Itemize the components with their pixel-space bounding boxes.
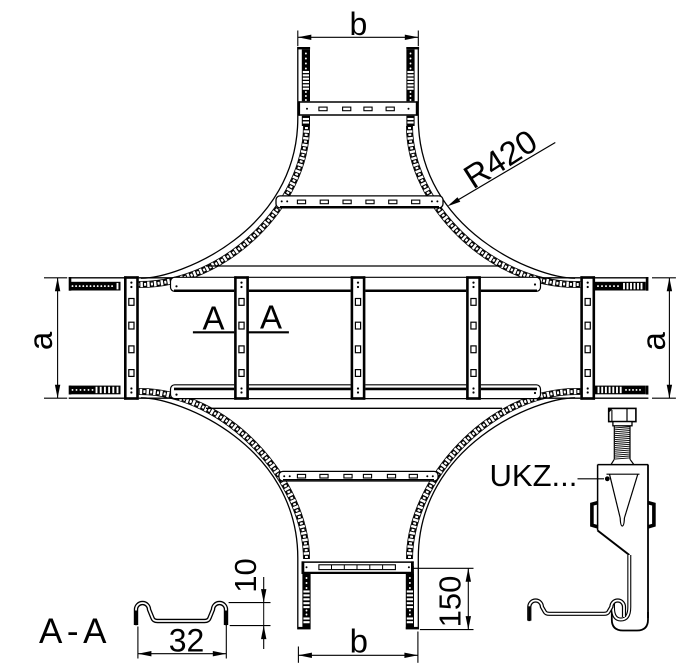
svg-text:a: a: [22, 331, 59, 350]
svg-text:A - A: A - A: [39, 612, 107, 651]
svg-text:A: A: [202, 299, 224, 336]
svg-text:10: 10: [228, 558, 263, 592]
svg-text:b: b: [350, 6, 368, 42]
svg-text:A: A: [260, 299, 282, 336]
svg-text:150: 150: [433, 576, 468, 628]
svg-text:a: a: [635, 331, 672, 350]
svg-text:32: 32: [169, 622, 205, 658]
svg-text:UKZ...: UKZ...: [490, 458, 578, 493]
svg-text:b: b: [350, 623, 368, 660]
